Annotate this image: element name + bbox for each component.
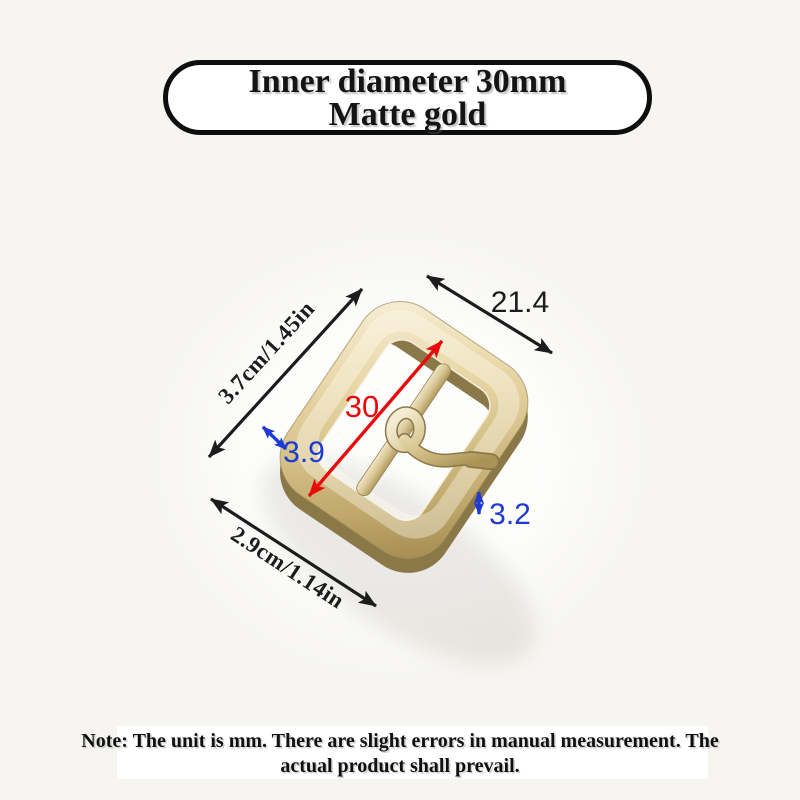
label-inner-diameter: 30 [345, 389, 379, 424]
label-top-width: 21.4 [491, 286, 549, 319]
label-prong-thickness: 3.2 [489, 498, 531, 531]
note-text: Note: The unit is mm. There are slight e… [50, 729, 750, 779]
note-line-2: actual product shall prevail. [280, 755, 519, 777]
label-frame-thickness: 3.9 [283, 436, 325, 469]
product-listing-image: Inner diameter 30mm Matte gold [0, 0, 800, 800]
buckle-illustration: 21.4 3.7cm/1.45in 2.9cm/1.14in 30 3.9 3.… [0, 0, 800, 800]
buckle-center-bar [354, 361, 454, 499]
note-line-1: Note: The unit is mm. There are slight e… [81, 730, 718, 752]
